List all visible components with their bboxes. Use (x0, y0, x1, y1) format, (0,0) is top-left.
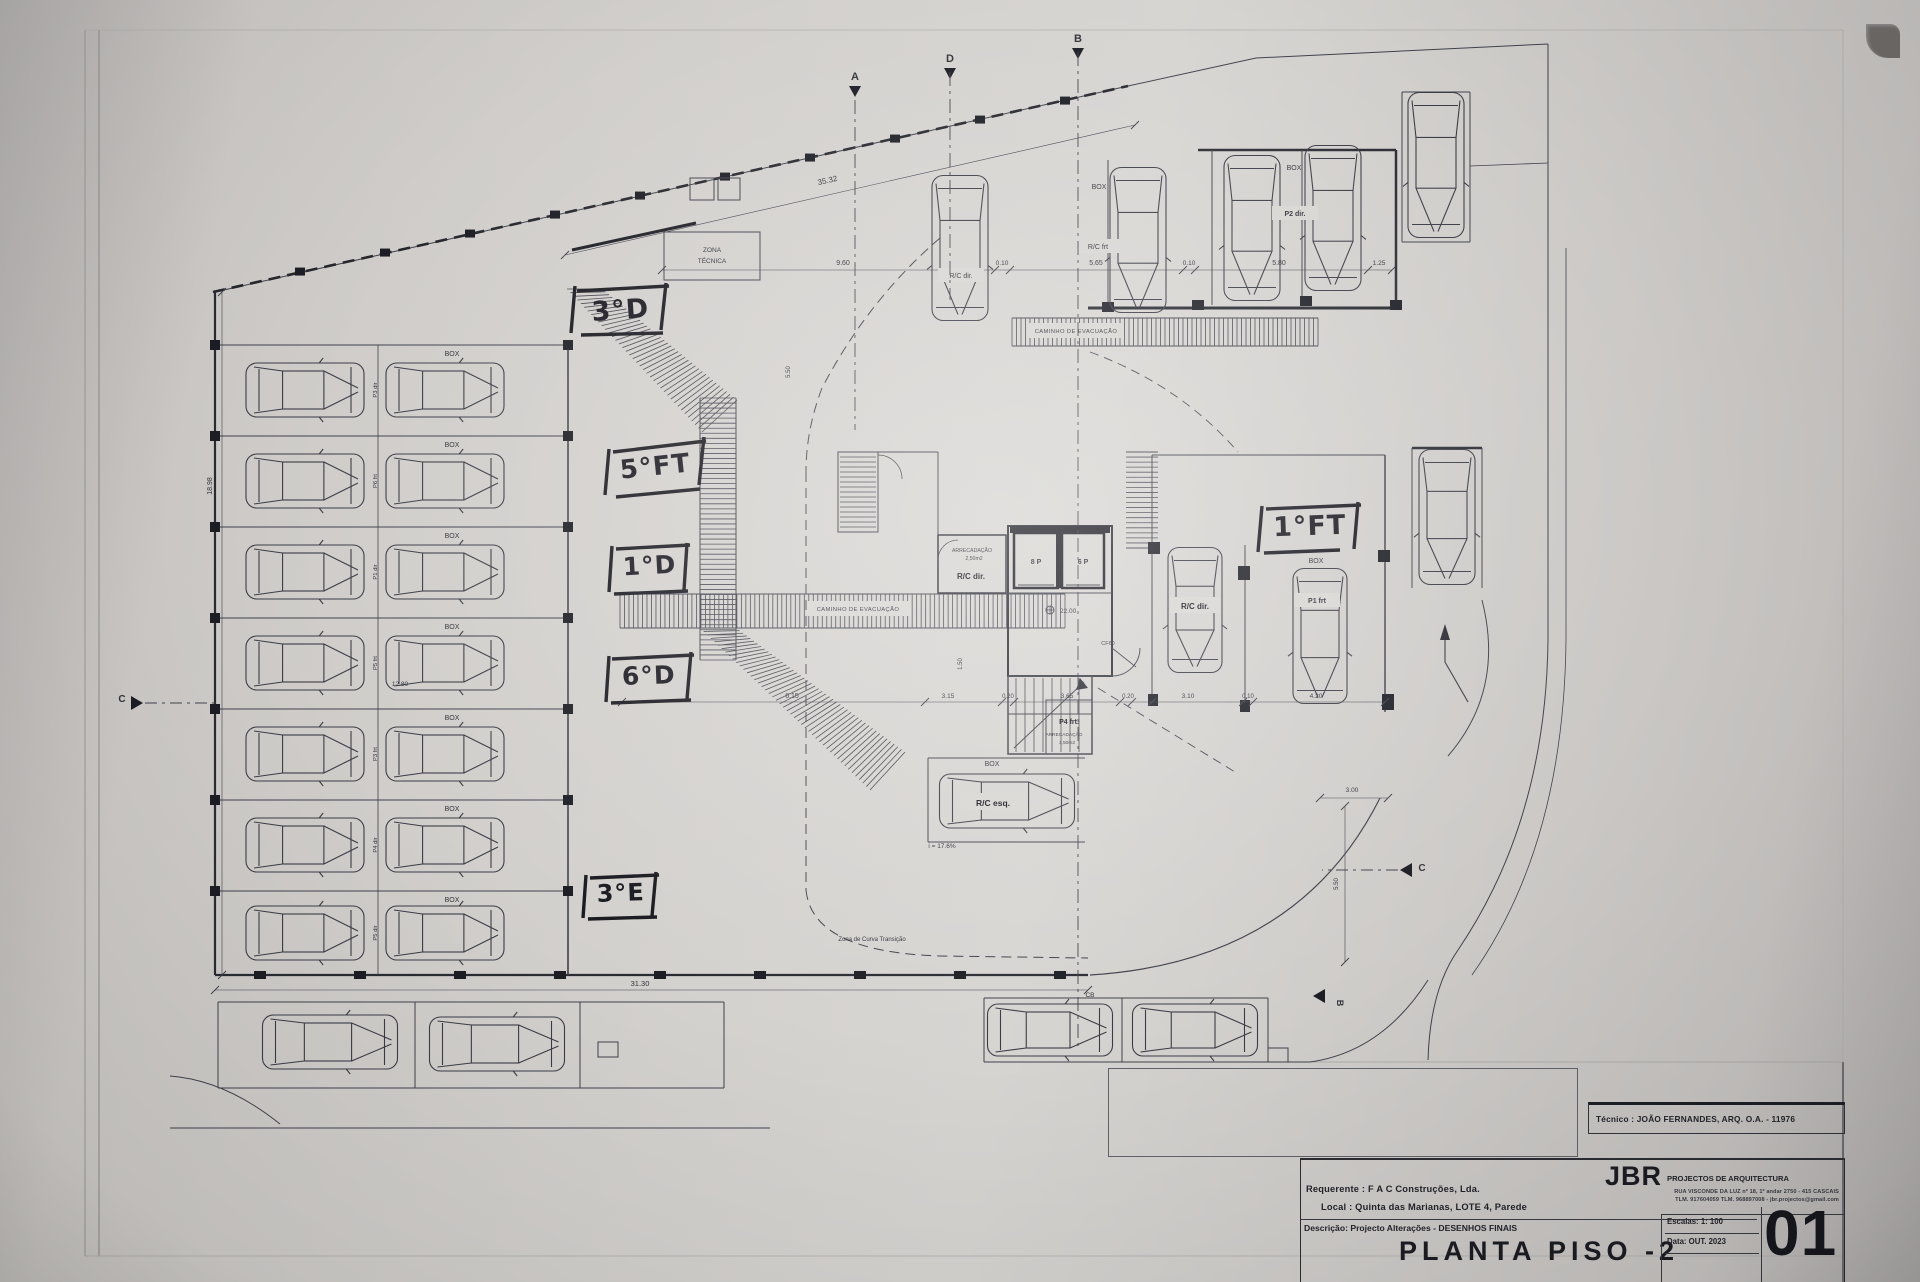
pillar (210, 704, 220, 714)
pillar (654, 971, 666, 979)
plan-line (819, 715, 854, 742)
title-block: Requerente : F A C Construções, Lda. Loc… (1300, 1158, 1845, 1282)
data-value: OUT. 2023 (1689, 1237, 1726, 1246)
pillar (1192, 300, 1204, 310)
pillar (805, 154, 815, 162)
plan-label: BOX (1092, 184, 1107, 191)
plan-label: BOX (1287, 165, 1302, 172)
plan-line (660, 366, 695, 388)
photographed-plan-sheet: ZONATÉCNICA9.600.105.650.105.801.2535.32… (0, 0, 1920, 1282)
plan-rect (718, 178, 740, 200)
plan-line (816, 712, 851, 738)
marker-triangle (849, 86, 861, 97)
plan-line (852, 739, 887, 773)
hand-box (590, 875, 659, 878)
car-icon (386, 358, 504, 422)
pillar (563, 340, 573, 350)
plan-path (1472, 248, 1566, 975)
plan-label: 3.00 (1346, 787, 1359, 794)
pillar (854, 971, 866, 979)
plan-path (1090, 352, 1238, 452)
pillar (890, 135, 900, 143)
plan-label: P1 frt (1308, 598, 1327, 605)
pillar (210, 431, 220, 441)
plan-label: ARRECADAÇÃO (1045, 731, 1082, 738)
plan-path (878, 455, 902, 479)
plan-label: CAMINHO DE EVACUAÇÃO (817, 606, 900, 613)
plan-label: R/C dir. (949, 273, 972, 280)
plan-label: A (851, 71, 859, 83)
sheet-number: 01 (1764, 1196, 1837, 1270)
pillar (210, 522, 220, 532)
plan-label: 5.65 (1089, 260, 1103, 267)
plan-label: P6 frt (373, 474, 379, 488)
plan-label: 0.20 (1122, 694, 1134, 700)
plan-label: 6.15 (785, 693, 799, 700)
pillar (635, 192, 645, 200)
plan-label: TÉCNICA (698, 256, 727, 265)
plan-line (827, 720, 862, 748)
plan-rect (1268, 1048, 1288, 1062)
hand-box (583, 875, 586, 918)
car-icon (246, 449, 364, 513)
plan-line (743, 660, 779, 670)
car-icon (386, 901, 504, 965)
plan-label: 35.32 (817, 174, 839, 187)
plan-label: BOX (445, 715, 460, 722)
plan-label: 22.00 (1060, 608, 1077, 615)
pillar (563, 886, 573, 896)
hand-box (613, 441, 706, 452)
pillar (1300, 296, 1312, 306)
plan-line (834, 726, 869, 756)
firm-descriptor: PROJECTOS DE ARQUITECTURA (1667, 1174, 1789, 1183)
plan-line (823, 718, 858, 745)
plan-label: 3.10 (1182, 693, 1195, 700)
car-icon (386, 813, 504, 877)
plan-line (685, 386, 720, 414)
hand-box (687, 652, 691, 699)
plan-label: P4 frt. (1059, 719, 1079, 726)
marker-triangle (1440, 624, 1450, 640)
plan-label: BOX (445, 351, 460, 358)
car-icon (386, 449, 504, 513)
escala-label: Escalas: (1667, 1217, 1699, 1226)
plan-label: 12.80 (392, 681, 409, 688)
hand-box (606, 656, 609, 702)
hand-label: 5°FT (618, 448, 691, 485)
car-icon (246, 813, 364, 877)
plan-label: 0.10 (1242, 694, 1254, 700)
plan-rect (1056, 533, 1062, 588)
pillar (1054, 971, 1066, 979)
car-icon (988, 999, 1113, 1061)
pillar (1378, 550, 1390, 562)
plan-label: 5.50 (786, 366, 792, 378)
plan-path (1310, 980, 1428, 1062)
pillar (1102, 302, 1114, 312)
plan-rect (664, 232, 760, 280)
plan-label: P3 dir (373, 382, 379, 397)
plan-line (565, 125, 1135, 255)
car-icon (386, 722, 504, 786)
car-icon (246, 358, 364, 422)
plan-line (837, 728, 872, 759)
hand-box (605, 449, 609, 495)
plan-line (650, 357, 685, 377)
descricao-label: Descrição: (1304, 1223, 1348, 1233)
hand-box (581, 333, 663, 335)
plan-line (704, 631, 740, 632)
tecnico-text: Técnico : JOÃO FERNANDES, ARQ. O.A. - 11… (1596, 1114, 1795, 1124)
car-icon (263, 1010, 398, 1074)
plan-label: BOX (445, 897, 460, 904)
plan-line (736, 654, 772, 662)
plan-line (812, 710, 847, 735)
plan-line (1112, 648, 1136, 667)
plan-label: P2 dir. (1284, 211, 1305, 218)
plan-label: BOX (445, 624, 460, 631)
pillar (563, 613, 573, 623)
hand-box (1354, 502, 1358, 549)
data-label: Data: (1667, 1237, 1687, 1246)
plan-label: ARRECADAÇÃO (952, 547, 992, 554)
hand-label: 3°D (591, 293, 651, 328)
firm-logo: JBR (1605, 1161, 1662, 1192)
car-icon (1288, 569, 1352, 704)
divider (1661, 1214, 1662, 1282)
hand-box (571, 286, 575, 333)
plan-line (1014, 682, 1084, 748)
hand-box (616, 545, 690, 549)
pillar (210, 795, 220, 805)
plan-line (794, 697, 829, 718)
plan-label: 5.50 (1334, 878, 1340, 890)
marker-triangle (1400, 863, 1412, 877)
local-value: Quinta das Marianas, LOTE 4, Parede (1355, 1202, 1527, 1212)
plan-rect (598, 1042, 618, 1057)
plan-path (1445, 630, 1468, 702)
plan-line (845, 734, 880, 766)
plan-line (1131, 121, 1139, 129)
plan-label: CAMINHO DE EVACUAÇÃO (1035, 328, 1118, 335)
local-label: Local : (1321, 1202, 1352, 1212)
descricao-row: Descrição: Projecto Alterações - DESENHO… (1304, 1223, 1517, 1233)
hand-box (588, 917, 657, 919)
car-icon (1414, 450, 1480, 585)
garage-entrance (572, 223, 696, 250)
plan-label: 6 P (1078, 559, 1089, 566)
car-icon (246, 631, 364, 695)
pillar (454, 971, 466, 979)
plan-label: 4.20 (1310, 693, 1323, 700)
escala-value: 1: 100 (1701, 1217, 1723, 1226)
plan-label: 3.15 (942, 693, 955, 700)
hand-box (1264, 550, 1340, 553)
plan-label: P5 dir (373, 925, 379, 940)
pillar (210, 613, 220, 623)
plan-line (681, 383, 716, 410)
plan-line (702, 400, 737, 432)
car-icon (246, 540, 364, 604)
plan-line (859, 744, 894, 780)
hand-box (1266, 505, 1361, 509)
plan-line (711, 636, 747, 638)
pillar (380, 249, 390, 257)
tecnico-box: Técnico : JOÃO FERNANDES, ARQ. O.A. - 11… (1588, 1102, 1845, 1134)
pillar (954, 971, 966, 979)
marker-triangle (1313, 989, 1325, 1003)
requerente-label: Requerente : (1306, 1184, 1365, 1194)
hand-label: 3°E (596, 878, 645, 908)
pillar (1148, 542, 1160, 554)
plan-line (769, 678, 805, 693)
plan-label: R/C frt (1088, 244, 1108, 251)
marker-triangle (131, 696, 143, 710)
plan-label: BOX (445, 806, 460, 813)
hand-label: 1°FT (1273, 510, 1347, 544)
escala-row: Escalas: 1: 100 (1667, 1217, 1723, 1226)
plan-line (1256, 44, 1548, 58)
pillar (210, 886, 220, 896)
pillar (720, 173, 730, 181)
plan-label: 0.10 (1183, 260, 1196, 267)
plan-label: 9.60 (836, 260, 850, 267)
plan-line (657, 363, 692, 384)
divider (1665, 1253, 1759, 1254)
plan-label: 31.30 (631, 979, 650, 988)
car-icon (386, 540, 504, 604)
plan-label: CB (1085, 992, 1094, 999)
plan-label: C (1418, 863, 1425, 874)
plan-label: Zona de Curva Transição (838, 937, 906, 943)
pillar (354, 971, 366, 979)
plan-label: D (946, 53, 954, 65)
plan-label: BOX (445, 442, 460, 449)
pillar (975, 116, 985, 124)
hand-label: 1°D (622, 550, 677, 582)
plan-line (654, 360, 689, 381)
plan-line (841, 731, 876, 763)
plan-label: ZONA (703, 247, 722, 254)
plan-label: 5.80 (1272, 260, 1286, 267)
plan-label: BOX (445, 533, 460, 540)
hand-label: 6°D (621, 660, 676, 691)
pillar (563, 522, 573, 532)
divider (1761, 1207, 1762, 1282)
hand-box (1258, 506, 1262, 552)
divider (1665, 1233, 1759, 1234)
plan-line (1128, 58, 1256, 86)
plan-label: 1.25 (1373, 260, 1386, 267)
plan-line (733, 652, 769, 659)
pillar (1060, 97, 1070, 105)
plan-label: C (118, 694, 125, 705)
plan-label: BOX (1309, 558, 1324, 565)
pillar (254, 971, 266, 979)
plan-line (848, 736, 883, 769)
pillar (554, 971, 566, 979)
hand-box (577, 286, 669, 291)
local-row: Local : Quinta das Marianas, LOTE 4, Par… (1321, 1202, 1527, 1212)
plan-path (170, 1076, 280, 1124)
hand-box (616, 489, 700, 497)
plan-label: B (1335, 1000, 1345, 1007)
car-icon (246, 901, 364, 965)
car-icon (1219, 156, 1285, 301)
plan-line (692, 391, 727, 421)
plan-label: P1 dir (373, 564, 379, 579)
plan-line (640, 349, 675, 366)
car-icon (927, 176, 993, 321)
plan-label: BOX (985, 761, 1000, 768)
plan-line (740, 657, 776, 666)
plan-path (806, 890, 1088, 958)
plan-label: i = 17.6% (928, 843, 956, 850)
plan-label: P4 dir (373, 837, 379, 852)
requerente-row: Requerente : F A C Construções, Lda. (1306, 1184, 1480, 1194)
pillar (563, 704, 573, 714)
plan-line (1098, 688, 1235, 772)
plan-label: 1.50 (958, 658, 964, 670)
plan-label: P5 frt (373, 656, 379, 670)
plan-label: 8 P (1031, 559, 1042, 566)
pillar (1238, 566, 1250, 580)
car-icon (430, 1012, 565, 1076)
hand-box (612, 655, 694, 659)
pillar (754, 971, 766, 979)
car-icon (1133, 999, 1258, 1061)
requerente-value: F A C Construções, Lda. (1368, 1184, 1480, 1194)
plan-label: R/C dir. (957, 572, 985, 581)
plan-label: R/C dir. (1181, 602, 1209, 611)
plan-label: 18.98 (207, 477, 214, 495)
plan-label: 3.65 (1061, 693, 1074, 700)
pillar (295, 268, 305, 276)
hand-box (609, 546, 612, 592)
floor-plan-drawing: ZONATÉCNICA9.600.105.650.105.801.2535.32… (0, 0, 1920, 1282)
plan-label: P3 frt (373, 747, 379, 761)
pillar (210, 340, 220, 350)
drawing-title: PLANTA PISO -2 (1399, 1236, 1679, 1267)
plan-label: 0.10 (996, 260, 1009, 267)
pillar (465, 230, 475, 238)
hand-box (652, 872, 656, 916)
plan-line (856, 741, 891, 776)
plan-label: 2,50m2 (965, 556, 982, 562)
car-icon (1403, 93, 1469, 238)
plan-line (1470, 163, 1548, 166)
plan-line (678, 380, 713, 406)
plan-label: R/C esq. (976, 798, 1010, 808)
pillar (550, 211, 560, 219)
hand-box (684, 543, 687, 590)
plan-label: 0.20 (1002, 694, 1014, 700)
car-icon (246, 722, 364, 786)
plan-line (633, 343, 668, 359)
plan-line (636, 346, 671, 362)
plan-label: B (1074, 33, 1082, 45)
plan-line (643, 352, 678, 370)
plan-line (647, 354, 682, 373)
plan-label: 3,50m2 (1059, 740, 1075, 746)
pillar (563, 431, 573, 441)
plan-path (1428, 248, 1548, 1060)
plan-path (806, 238, 940, 472)
pillar (563, 795, 573, 805)
descricao-value: Projecto Alterações - DESENHOS FINAIS (1350, 1223, 1517, 1233)
plan-line (561, 251, 569, 259)
plan-label: CF60 (1101, 641, 1114, 647)
plan-rect (938, 535, 1006, 593)
plan-line (830, 723, 865, 752)
data-row: Data: OUT. 2023 (1667, 1237, 1726, 1246)
location-plan-box (1108, 1068, 1578, 1157)
pillar (1390, 300, 1402, 310)
plan-path (1112, 648, 1140, 676)
hand-box (661, 283, 666, 330)
